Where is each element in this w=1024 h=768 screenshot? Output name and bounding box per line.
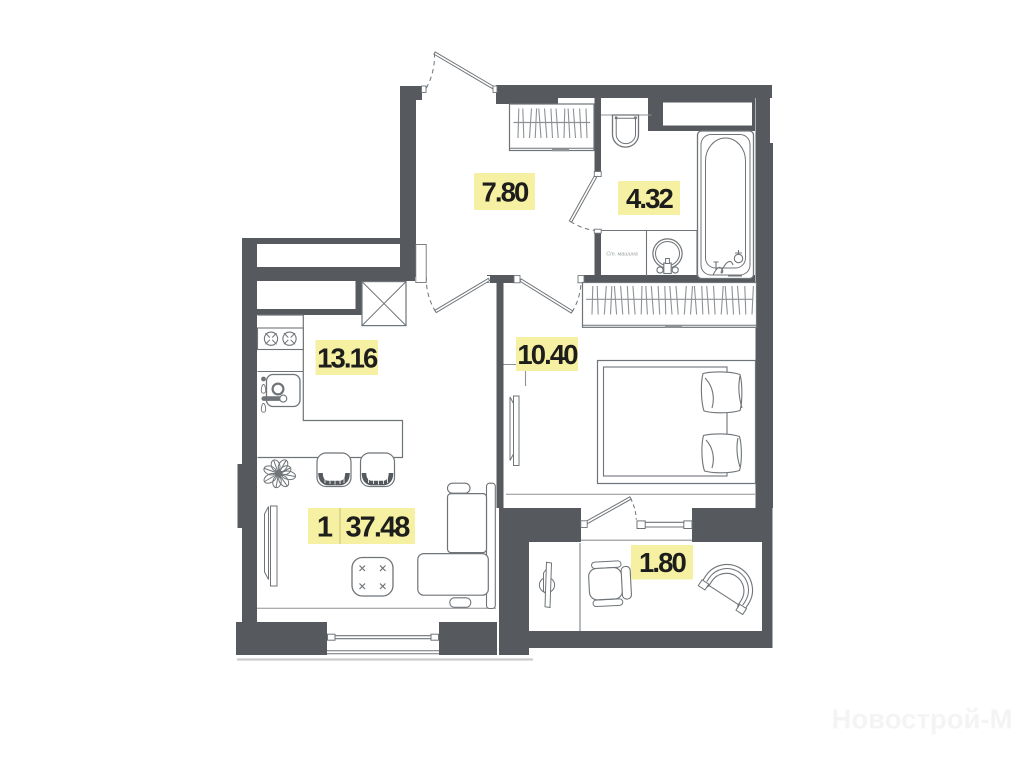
svg-text:10.40: 10.40 [517, 339, 578, 370]
svg-text:Ст. машина: Ст. машина [606, 252, 637, 258]
svg-text:1.80: 1.80 [639, 547, 687, 578]
svg-text:1: 1 [317, 512, 333, 544]
svg-text:37.48: 37.48 [345, 512, 410, 544]
svg-text:Новострой-М: Новострой-М [832, 704, 1013, 735]
svg-text:13.16: 13.16 [317, 342, 378, 373]
svg-text:4.32: 4.32 [626, 183, 674, 214]
svg-text:7.80: 7.80 [482, 176, 530, 207]
